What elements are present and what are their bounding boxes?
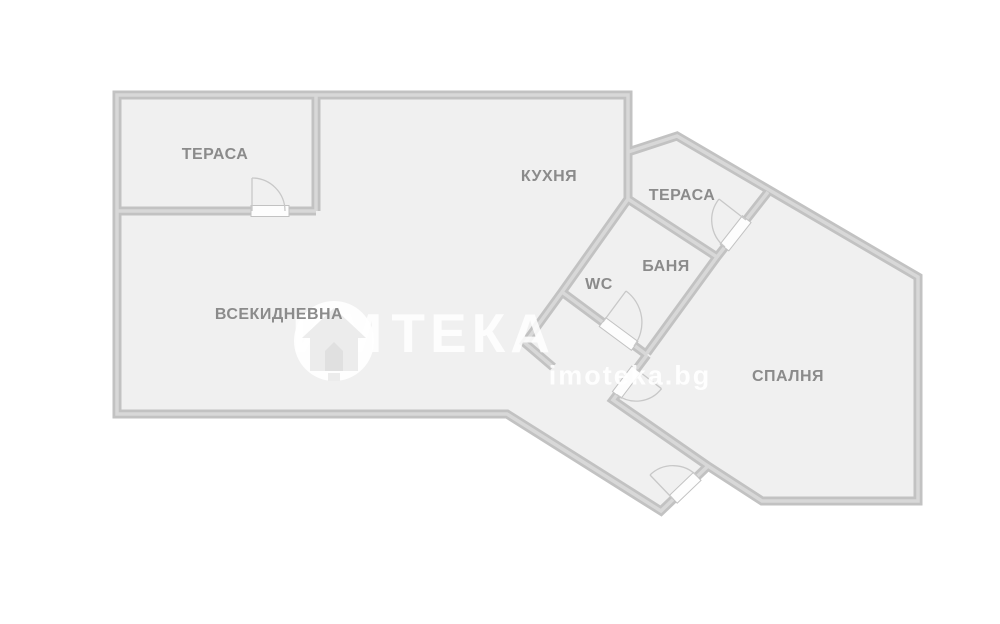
floor-plan-page: ИМ ТЕКА imoteka.bg ТЕРАСАКУХНЯТЕРАСАБАНЯ… [0,0,1000,624]
logo-base [328,373,340,381]
watermark-text-part2: ТЕКА [391,301,555,365]
imoteka-url-watermark: imoteka.bg [549,361,712,392]
room-label-living-room: ВСЕКИДНЕВНА [215,306,343,324]
room-label-wc: WC [585,276,613,294]
room-label-bathroom: БАНЯ [642,258,690,276]
room-label-terrace-right: ТЕРАСА [649,187,716,205]
room-label-bedroom: СПАЛНЯ [752,368,824,386]
room-label-terrace-left: ТЕРАСА [182,146,249,164]
room-label-kitchen: КУХНЯ [521,168,577,186]
terrace-left-door-opening [251,206,289,217]
